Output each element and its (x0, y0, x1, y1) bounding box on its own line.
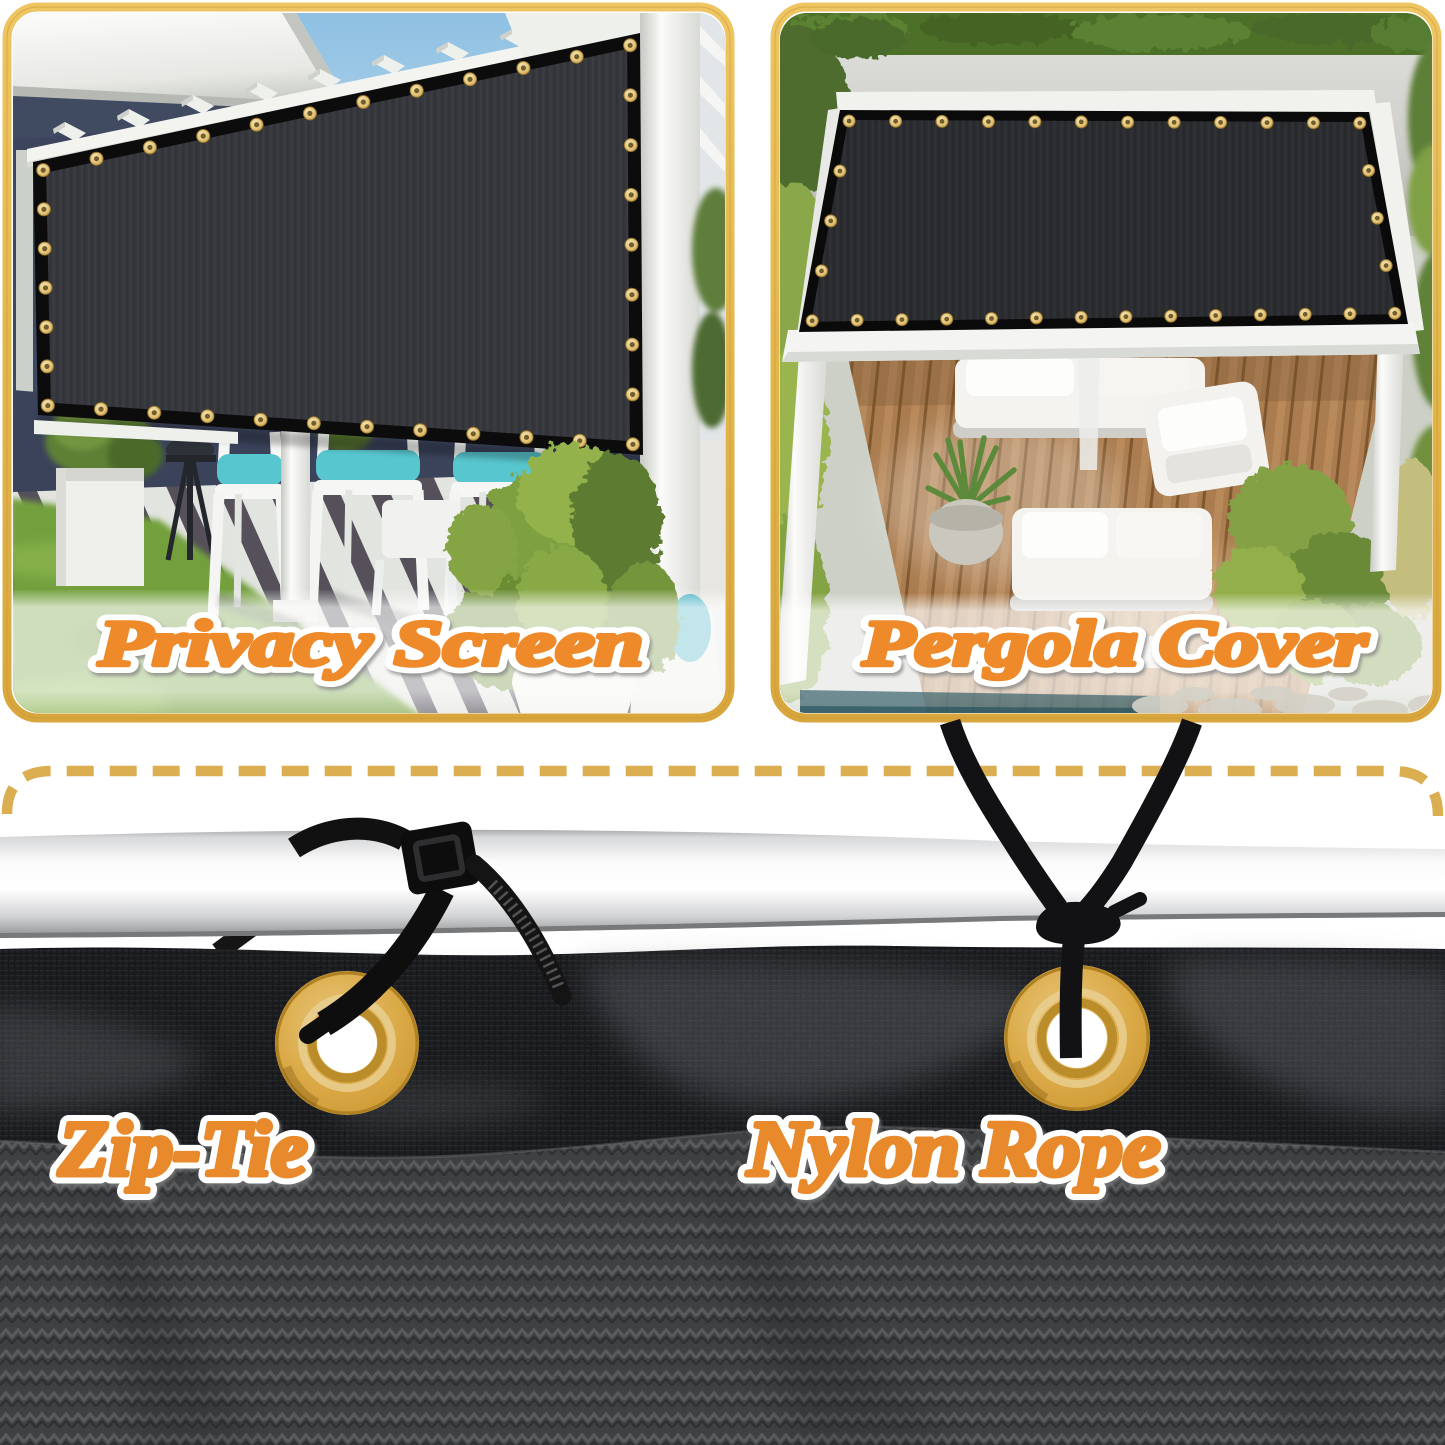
svg-text:Nylon Rope: Nylon Rope (746, 1105, 1160, 1192)
svg-text:Privacy Screen: Privacy Screen (97, 608, 643, 680)
svg-text:Zip-Tie: Zip-Tie (57, 1105, 307, 1192)
svg-text:Pergola Cover: Pergola Cover (861, 608, 1368, 680)
